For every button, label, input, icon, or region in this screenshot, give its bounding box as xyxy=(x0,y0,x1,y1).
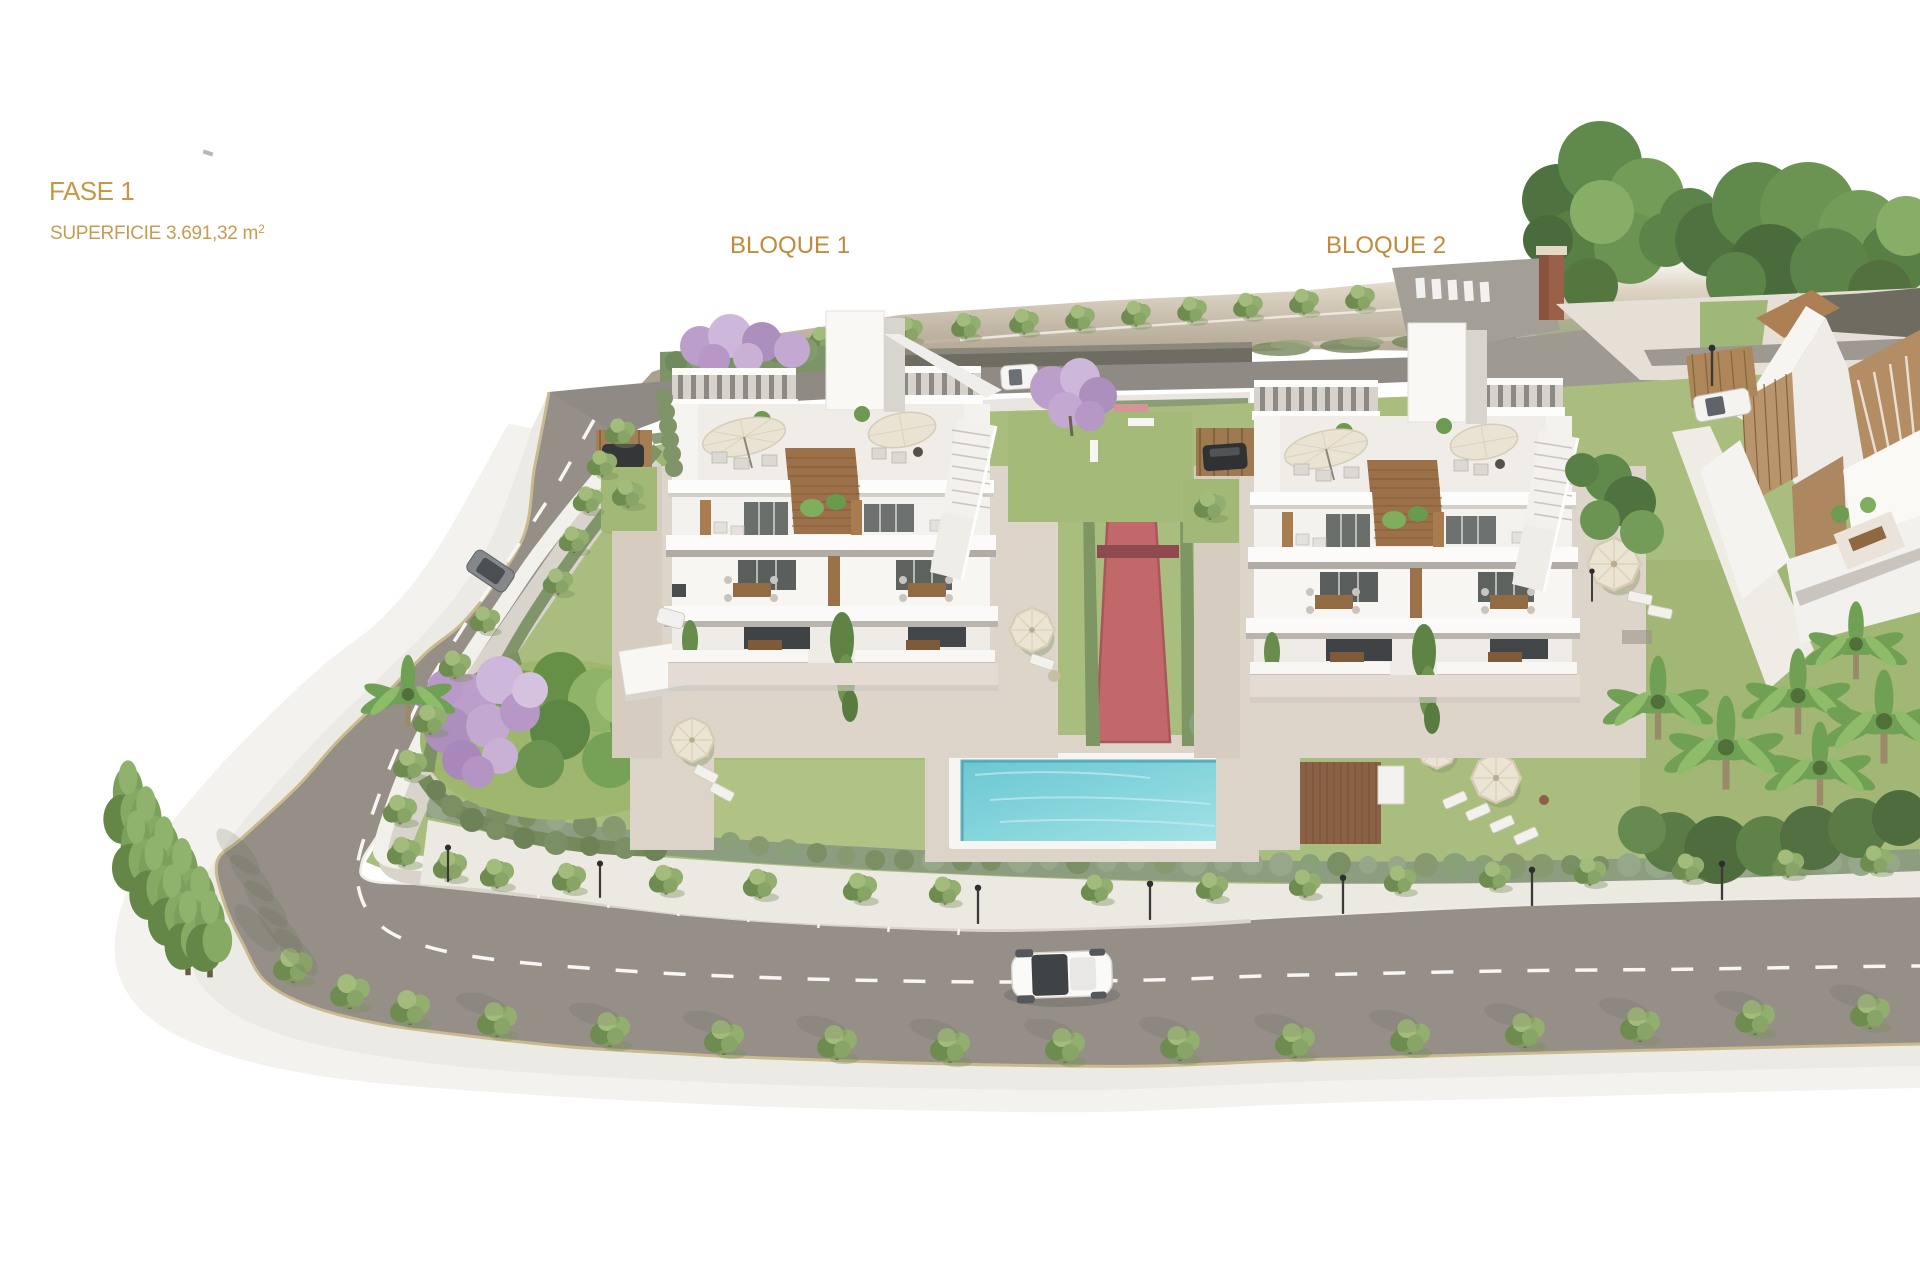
svg-text:FASE 1: FASE 1 xyxy=(49,176,134,206)
svg-text:SUPERFICIE 3.691,32 m2: SUPERFICIE 3.691,32 m2 xyxy=(50,222,265,244)
svg-text:BLOQUE 1: BLOQUE 1 xyxy=(730,232,850,259)
svg-text:BLOQUE 2: BLOQUE 2 xyxy=(1326,232,1446,259)
